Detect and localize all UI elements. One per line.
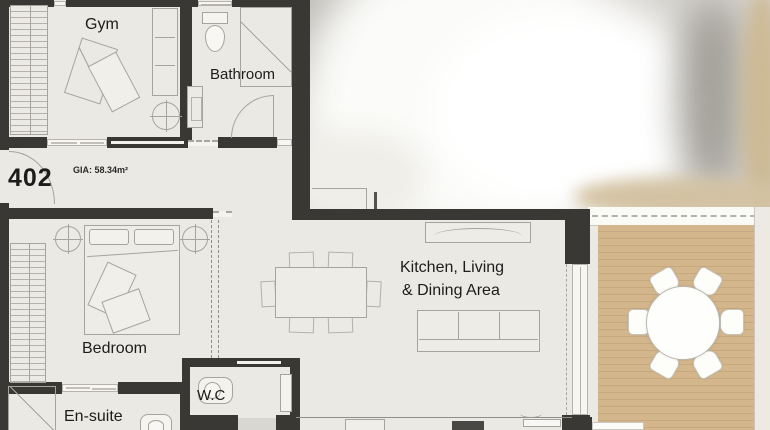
dining-table <box>275 267 367 318</box>
sliding-door-ensuite <box>62 384 118 392</box>
door-gap-bath-right <box>277 139 292 146</box>
wall-bath-right <box>292 0 310 216</box>
bathroom-door-leaf <box>273 95 274 137</box>
bedroom-living-partition <box>211 220 219 358</box>
ceiling-fan-symbol <box>182 226 208 252</box>
wc-label: W.C <box>197 387 225 404</box>
kitchen-label-line2: & Dining Area <box>402 282 500 300</box>
wall-bedroom-top <box>9 208 213 219</box>
door-opening-bathroom <box>188 140 218 146</box>
bathroom-sink <box>187 86 203 128</box>
floor-plan: Gym Bathroom 402 GIA: 58.34m² Bedroom En… <box>0 0 770 430</box>
kitchen-sink <box>523 419 561 427</box>
kitchen-faucet <box>520 409 542 418</box>
toilet-tank <box>202 12 228 24</box>
balcony-round-table <box>646 286 720 360</box>
sliding-door-gym <box>47 139 107 146</box>
blurred-region <box>310 0 770 209</box>
kitchen-hob <box>452 421 484 430</box>
kitchen-label-line1: Kitchen, Living <box>400 259 504 277</box>
gym-machine <box>152 8 178 96</box>
wall-kitchen-corner <box>570 417 592 430</box>
window-top-gym <box>54 1 66 6</box>
gym-wardrobe <box>10 5 48 135</box>
wall-wc-bottom-gap <box>238 418 276 430</box>
unit-number: 402 <box>8 164 53 193</box>
wall-corner-line <box>366 188 367 209</box>
balcony-door-dash <box>566 264 567 415</box>
window-top-bath <box>198 1 232 6</box>
gym-label: Gym <box>85 16 119 34</box>
sofa <box>417 310 540 352</box>
opening-corridor-living <box>213 211 232 217</box>
wall-wc-left <box>182 358 190 430</box>
balcony-railing-right <box>754 207 770 430</box>
railing-glass-line <box>592 215 766 217</box>
wall-blur-bottom <box>292 209 570 220</box>
gia-label: GIA: 58.34m² <box>73 165 128 175</box>
toilet-bowl <box>205 25 225 52</box>
blur-blob <box>575 178 770 209</box>
wall-corridor-top-c <box>218 137 277 148</box>
balcony-railing-top <box>588 207 770 226</box>
bathroom-label: Bathroom <box>210 66 275 83</box>
pillow <box>89 229 129 245</box>
wall-corner-line <box>312 188 367 189</box>
sideboard <box>425 222 531 243</box>
wall-corridor-top-a <box>0 137 47 148</box>
bedroom-label: Bedroom <box>82 340 147 358</box>
wall-top-gym-b <box>66 0 180 7</box>
dining-chair <box>289 316 315 334</box>
kitchen-cabinet <box>345 419 385 430</box>
wall-left-top <box>0 0 9 150</box>
ensuite-label: En-suite <box>64 408 123 426</box>
wall-wc-bottom-a <box>190 415 238 430</box>
wall-wc-top <box>182 358 298 367</box>
dining-chair <box>328 316 354 334</box>
blur-blob <box>678 0 744 190</box>
bathroom-door-arc <box>231 95 274 138</box>
wall-corridor-top-b <box>107 137 188 148</box>
bedroom-wardrobe <box>10 243 46 383</box>
wc-sink <box>280 374 292 412</box>
blur-blob <box>742 0 770 209</box>
ensuite-toilet <box>140 414 172 430</box>
ceiling-fan-symbol <box>152 102 180 130</box>
door-post <box>374 192 377 209</box>
balcony-planter <box>592 422 644 430</box>
dining-chair <box>365 281 381 308</box>
ceiling-fan-symbol <box>55 226 81 252</box>
pillow <box>134 229 174 245</box>
balcony-chair <box>720 309 744 335</box>
ensuite-shower <box>8 386 56 430</box>
balcony-sliding-door <box>572 264 588 415</box>
